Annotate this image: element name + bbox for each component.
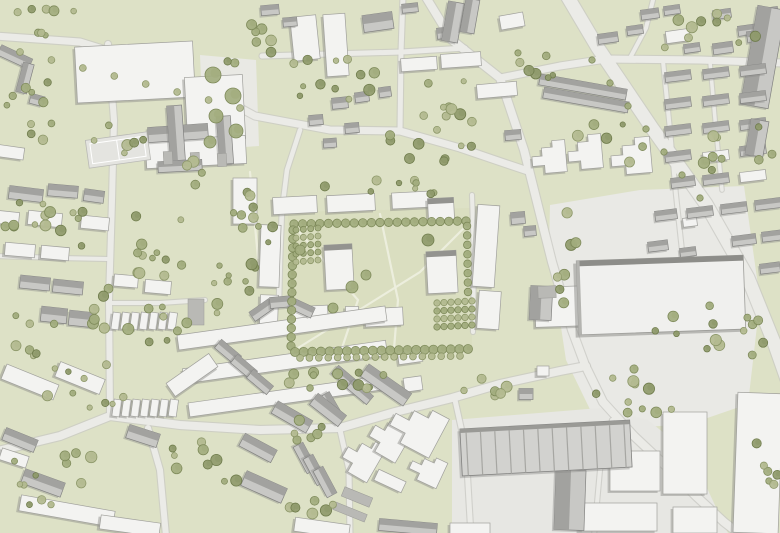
tree-highlight [68, 369, 71, 372]
tree-highlight [12, 93, 16, 97]
tree-highlight [346, 347, 351, 352]
tree [396, 180, 401, 185]
tree-highlight [414, 186, 417, 189]
tree-highlight [467, 279, 472, 284]
tree-highlight [240, 211, 245, 216]
tree-highlight [180, 261, 185, 266]
tree [424, 79, 432, 87]
tree [364, 84, 375, 95]
tree-highlight [406, 346, 411, 351]
tree [464, 288, 472, 296]
tree [684, 34, 692, 42]
tree-highlight [676, 331, 679, 334]
tree [245, 286, 254, 295]
tree-highlight [89, 405, 92, 408]
tree-highlight [214, 110, 222, 118]
tree-highlight [708, 303, 713, 308]
tree-highlight [423, 112, 428, 117]
tree [32, 350, 40, 358]
tree [123, 323, 134, 334]
tree-highlight [166, 338, 170, 342]
tree [708, 152, 717, 161]
tree [607, 80, 613, 86]
tree-highlight [310, 234, 314, 238]
tree [211, 280, 216, 285]
tree [182, 318, 192, 328]
tree [50, 320, 57, 327]
tree [413, 138, 424, 149]
tree-highlight [83, 376, 87, 380]
tree-highlight [73, 9, 76, 12]
tree-highlight [654, 328, 658, 332]
tree [429, 345, 438, 354]
tree-highlight [471, 314, 475, 318]
tree [245, 191, 255, 201]
tree [713, 18, 721, 26]
tree-highlight [436, 308, 440, 312]
tree-highlight [441, 346, 446, 351]
tree-highlight [387, 219, 392, 224]
tree [230, 210, 236, 216]
tree-highlight [628, 158, 634, 164]
building-roof [259, 225, 281, 288]
tree [448, 323, 454, 329]
tree-highlight [35, 350, 40, 355]
tree [464, 345, 473, 354]
building-roof [477, 290, 502, 329]
tree-highlight [746, 315, 750, 319]
building-flat-roof [731, 392, 780, 533]
building-gabled [552, 469, 586, 532]
tree-highlight [368, 85, 375, 92]
tree-highlight [219, 263, 222, 266]
tree-highlight [384, 354, 388, 358]
tree [310, 372, 317, 379]
tree-highlight [362, 219, 367, 224]
tree [463, 241, 471, 249]
building-flat-roof [535, 366, 549, 378]
tree-highlight [293, 431, 297, 435]
roof-north-slope [554, 469, 571, 529]
tree [324, 219, 332, 227]
tree [122, 150, 128, 156]
tree-highlight [443, 324, 447, 328]
tree [704, 345, 711, 352]
building-roof [144, 279, 171, 294]
tree-highlight [233, 210, 237, 214]
tree-highlight [466, 251, 471, 256]
tree-highlight [72, 210, 76, 214]
tree-highlight [294, 504, 299, 509]
tree [144, 304, 153, 313]
building-roof [323, 13, 349, 76]
tree-highlight [319, 220, 324, 225]
tree [355, 369, 362, 376]
tree [420, 112, 428, 120]
tree [445, 217, 453, 225]
tree [255, 223, 261, 229]
tree-highlight [763, 463, 767, 467]
tree-highlight [29, 502, 33, 506]
tree-highlight [457, 323, 461, 327]
tree-highlight [231, 89, 241, 99]
tree-highlight [133, 139, 138, 144]
tree-highlight [105, 361, 110, 366]
tree [249, 213, 259, 223]
tree-highlight [427, 80, 432, 85]
tree-highlight [42, 136, 48, 142]
tree [268, 222, 278, 232]
tree [162, 256, 169, 263]
tree-highlight [294, 348, 299, 353]
tree-highlight [54, 366, 57, 369]
tree [639, 406, 645, 412]
tree-highlight [202, 445, 208, 451]
tree-highlight [527, 66, 533, 72]
tree-highlight [405, 218, 410, 223]
building-gabled [281, 17, 298, 29]
tree-highlight [316, 430, 322, 436]
tree [225, 88, 241, 104]
tree [315, 257, 321, 263]
tree [204, 136, 216, 148]
tree [91, 138, 97, 144]
tree [134, 268, 145, 279]
tree [572, 130, 583, 141]
tree [752, 439, 761, 448]
tree [372, 176, 381, 185]
tree [160, 313, 167, 320]
tree [708, 166, 715, 173]
tree-highlight [627, 103, 631, 107]
tree-highlight [31, 90, 35, 94]
tree-highlight [443, 157, 448, 162]
building-flat-roof [142, 279, 172, 296]
tree-highlight [239, 105, 243, 109]
tree-highlight [365, 384, 370, 389]
tree-highlight [374, 354, 378, 358]
building-roof [4, 242, 35, 258]
tree-highlight [59, 226, 65, 232]
site-plan [0, 0, 780, 533]
tree-highlight [234, 125, 242, 133]
tree [668, 406, 674, 412]
tree-highlight [365, 354, 369, 358]
tree [333, 58, 339, 64]
tree [217, 263, 222, 268]
tree-highlight [327, 355, 331, 359]
tree [455, 307, 461, 313]
tree-highlight [135, 212, 141, 218]
tree [40, 201, 46, 207]
tree-highlight [75, 449, 80, 454]
tree [266, 240, 271, 245]
building-gabled [376, 86, 392, 100]
tree [266, 47, 276, 57]
tree-highlight [317, 249, 321, 253]
tree-highlight [216, 311, 219, 314]
building-gabled [400, 3, 419, 16]
tree-highlight [327, 220, 332, 225]
tree-highlight [80, 479, 86, 485]
tree [177, 261, 185, 269]
tree-highlight [375, 177, 381, 183]
tree-highlight [439, 218, 444, 223]
tree-highlight [706, 346, 710, 350]
building-roof [476, 81, 517, 98]
tree-highlight [186, 162, 192, 168]
tree-highlight [185, 319, 191, 325]
tree-highlight [443, 105, 447, 109]
tree [419, 353, 426, 360]
tree [402, 218, 410, 226]
tree [625, 103, 631, 109]
tree [316, 80, 326, 90]
tree [623, 408, 632, 417]
tree [755, 124, 762, 131]
tree [293, 259, 299, 265]
tree [89, 314, 99, 324]
building-roof [80, 215, 109, 231]
tree-highlight [609, 80, 613, 84]
tree-highlight [299, 93, 302, 96]
tree-highlight [423, 346, 428, 351]
tree-highlight [677, 15, 683, 21]
tree [160, 271, 169, 280]
tree [369, 68, 380, 79]
building-flat-roof [270, 195, 317, 216]
tree [237, 211, 246, 220]
roof-north-slope [519, 389, 533, 395]
tree [111, 73, 118, 80]
tree-highlight [422, 218, 427, 223]
tree-highlight [450, 353, 454, 357]
tree-highlight [31, 6, 36, 11]
building-roof [327, 193, 376, 212]
tree-highlight [341, 380, 347, 386]
roof-north-slope [511, 211, 525, 218]
tree-highlight [147, 305, 152, 310]
tree-highlight [317, 233, 321, 237]
tree-highlight [612, 375, 616, 379]
building-gabled [759, 230, 780, 244]
tree-highlight [379, 219, 384, 224]
tree-highlight [290, 334, 295, 339]
tree [332, 85, 339, 92]
tree [52, 366, 57, 371]
building-flat-roof [324, 193, 375, 215]
tree-highlight [480, 375, 485, 380]
mark [538, 286, 556, 299]
tree-highlight [174, 453, 178, 457]
tree [102, 399, 109, 406]
tree-highlight [558, 286, 563, 291]
tree-highlight [373, 68, 379, 74]
tree-highlight [721, 156, 725, 160]
tree [367, 218, 375, 226]
tree-highlight [382, 372, 386, 376]
tree [464, 260, 472, 268]
tree-highlight [176, 89, 180, 93]
tree-highlight [467, 289, 472, 294]
tree-highlight [647, 384, 654, 391]
tree [440, 157, 448, 165]
tree [291, 430, 298, 437]
tree [427, 190, 435, 198]
tree [70, 390, 76, 396]
tree [287, 306, 295, 314]
tree [120, 393, 128, 401]
tree-highlight [312, 372, 316, 376]
tree-highlight [464, 299, 468, 303]
tree [315, 354, 322, 361]
tree [226, 273, 231, 278]
tree-highlight [310, 258, 314, 262]
tree-highlight [127, 324, 134, 331]
tree [462, 322, 468, 328]
tree-highlight [436, 316, 440, 320]
building-roof [663, 412, 707, 494]
tree-highlight [591, 57, 595, 61]
tree [27, 130, 35, 138]
tree [413, 180, 420, 187]
tree-highlight [208, 137, 215, 144]
tree-highlight [112, 402, 115, 405]
tree-highlight [6, 103, 9, 106]
tree [237, 105, 244, 112]
tree-highlight [627, 399, 631, 403]
tree-highlight [431, 353, 435, 357]
tree-highlight [336, 369, 342, 375]
tree-highlight [235, 476, 242, 483]
tree-highlight [291, 298, 296, 303]
tree [320, 182, 329, 191]
tree [224, 58, 231, 65]
tree-highlight [346, 56, 351, 61]
tree [708, 131, 719, 142]
tree-highlight [663, 149, 667, 153]
tree-highlight [302, 227, 306, 231]
tree-highlight [248, 287, 253, 292]
tree [136, 239, 146, 249]
tree-highlight [19, 49, 23, 53]
tree-highlight [348, 97, 352, 101]
tree [169, 445, 176, 452]
tree-highlight [311, 509, 318, 516]
tree [441, 307, 447, 313]
tree [71, 449, 80, 458]
tree [288, 270, 296, 278]
tree-highlight [702, 158, 709, 165]
building-roof [733, 392, 780, 533]
tree [344, 354, 351, 361]
tree [308, 242, 314, 248]
tree [308, 226, 314, 232]
tree [231, 475, 242, 486]
tree [134, 249, 142, 257]
tree-highlight [353, 219, 358, 224]
tree [27, 502, 33, 508]
tree-highlight [102, 292, 108, 298]
tree-highlight [50, 121, 54, 125]
tree [419, 218, 427, 226]
tree [294, 415, 304, 425]
tree [469, 298, 475, 304]
tree-highlight [464, 315, 468, 319]
tree-highlight [42, 202, 45, 205]
tree-highlight [711, 153, 716, 158]
tree [736, 40, 742, 46]
tree [205, 67, 221, 83]
tree [288, 279, 296, 287]
tree [516, 58, 524, 66]
building-roof [673, 507, 717, 533]
tree [297, 355, 304, 362]
tree [150, 255, 156, 261]
tree [300, 258, 306, 264]
tree-highlight [255, 38, 260, 43]
tree-highlight [632, 376, 639, 383]
tree [468, 117, 477, 126]
tree [174, 89, 181, 96]
tree [353, 354, 360, 361]
tree [332, 369, 342, 379]
tree [346, 281, 358, 293]
tree [212, 298, 223, 309]
tree [81, 375, 87, 381]
tree [463, 232, 471, 240]
tree [303, 55, 312, 64]
tree-highlight [175, 464, 181, 470]
building-gabled [45, 184, 78, 201]
tree-highlight [24, 84, 30, 90]
tree-highlight [308, 355, 312, 359]
tree [307, 385, 314, 392]
tree [448, 307, 454, 313]
tree-highlight [417, 139, 424, 146]
tree-highlight [140, 240, 146, 246]
tree-highlight [556, 273, 561, 278]
tree [673, 15, 684, 26]
tree [661, 149, 667, 155]
tree-highlight [152, 256, 155, 259]
tree-highlight [194, 181, 199, 186]
ribbed-shed [457, 420, 632, 478]
building-flat-roof [577, 503, 657, 533]
tree [381, 354, 388, 361]
tree [85, 451, 96, 462]
tree [380, 372, 387, 379]
tree-highlight [440, 353, 444, 357]
tree [455, 323, 461, 329]
gray-mark [217, 153, 227, 166]
tree [601, 133, 611, 143]
tree [231, 59, 239, 67]
tree-highlight [206, 461, 211, 466]
tree [455, 315, 461, 321]
tree-highlight [449, 345, 454, 350]
tree [329, 501, 336, 508]
tree [198, 445, 208, 455]
tree [45, 207, 56, 218]
building-flat-roof [671, 507, 717, 533]
tree [334, 354, 341, 361]
tree [333, 219, 341, 227]
tree [462, 306, 468, 312]
tree-highlight [290, 316, 295, 321]
hall-roof [576, 255, 745, 335]
tree-highlight [180, 217, 184, 221]
